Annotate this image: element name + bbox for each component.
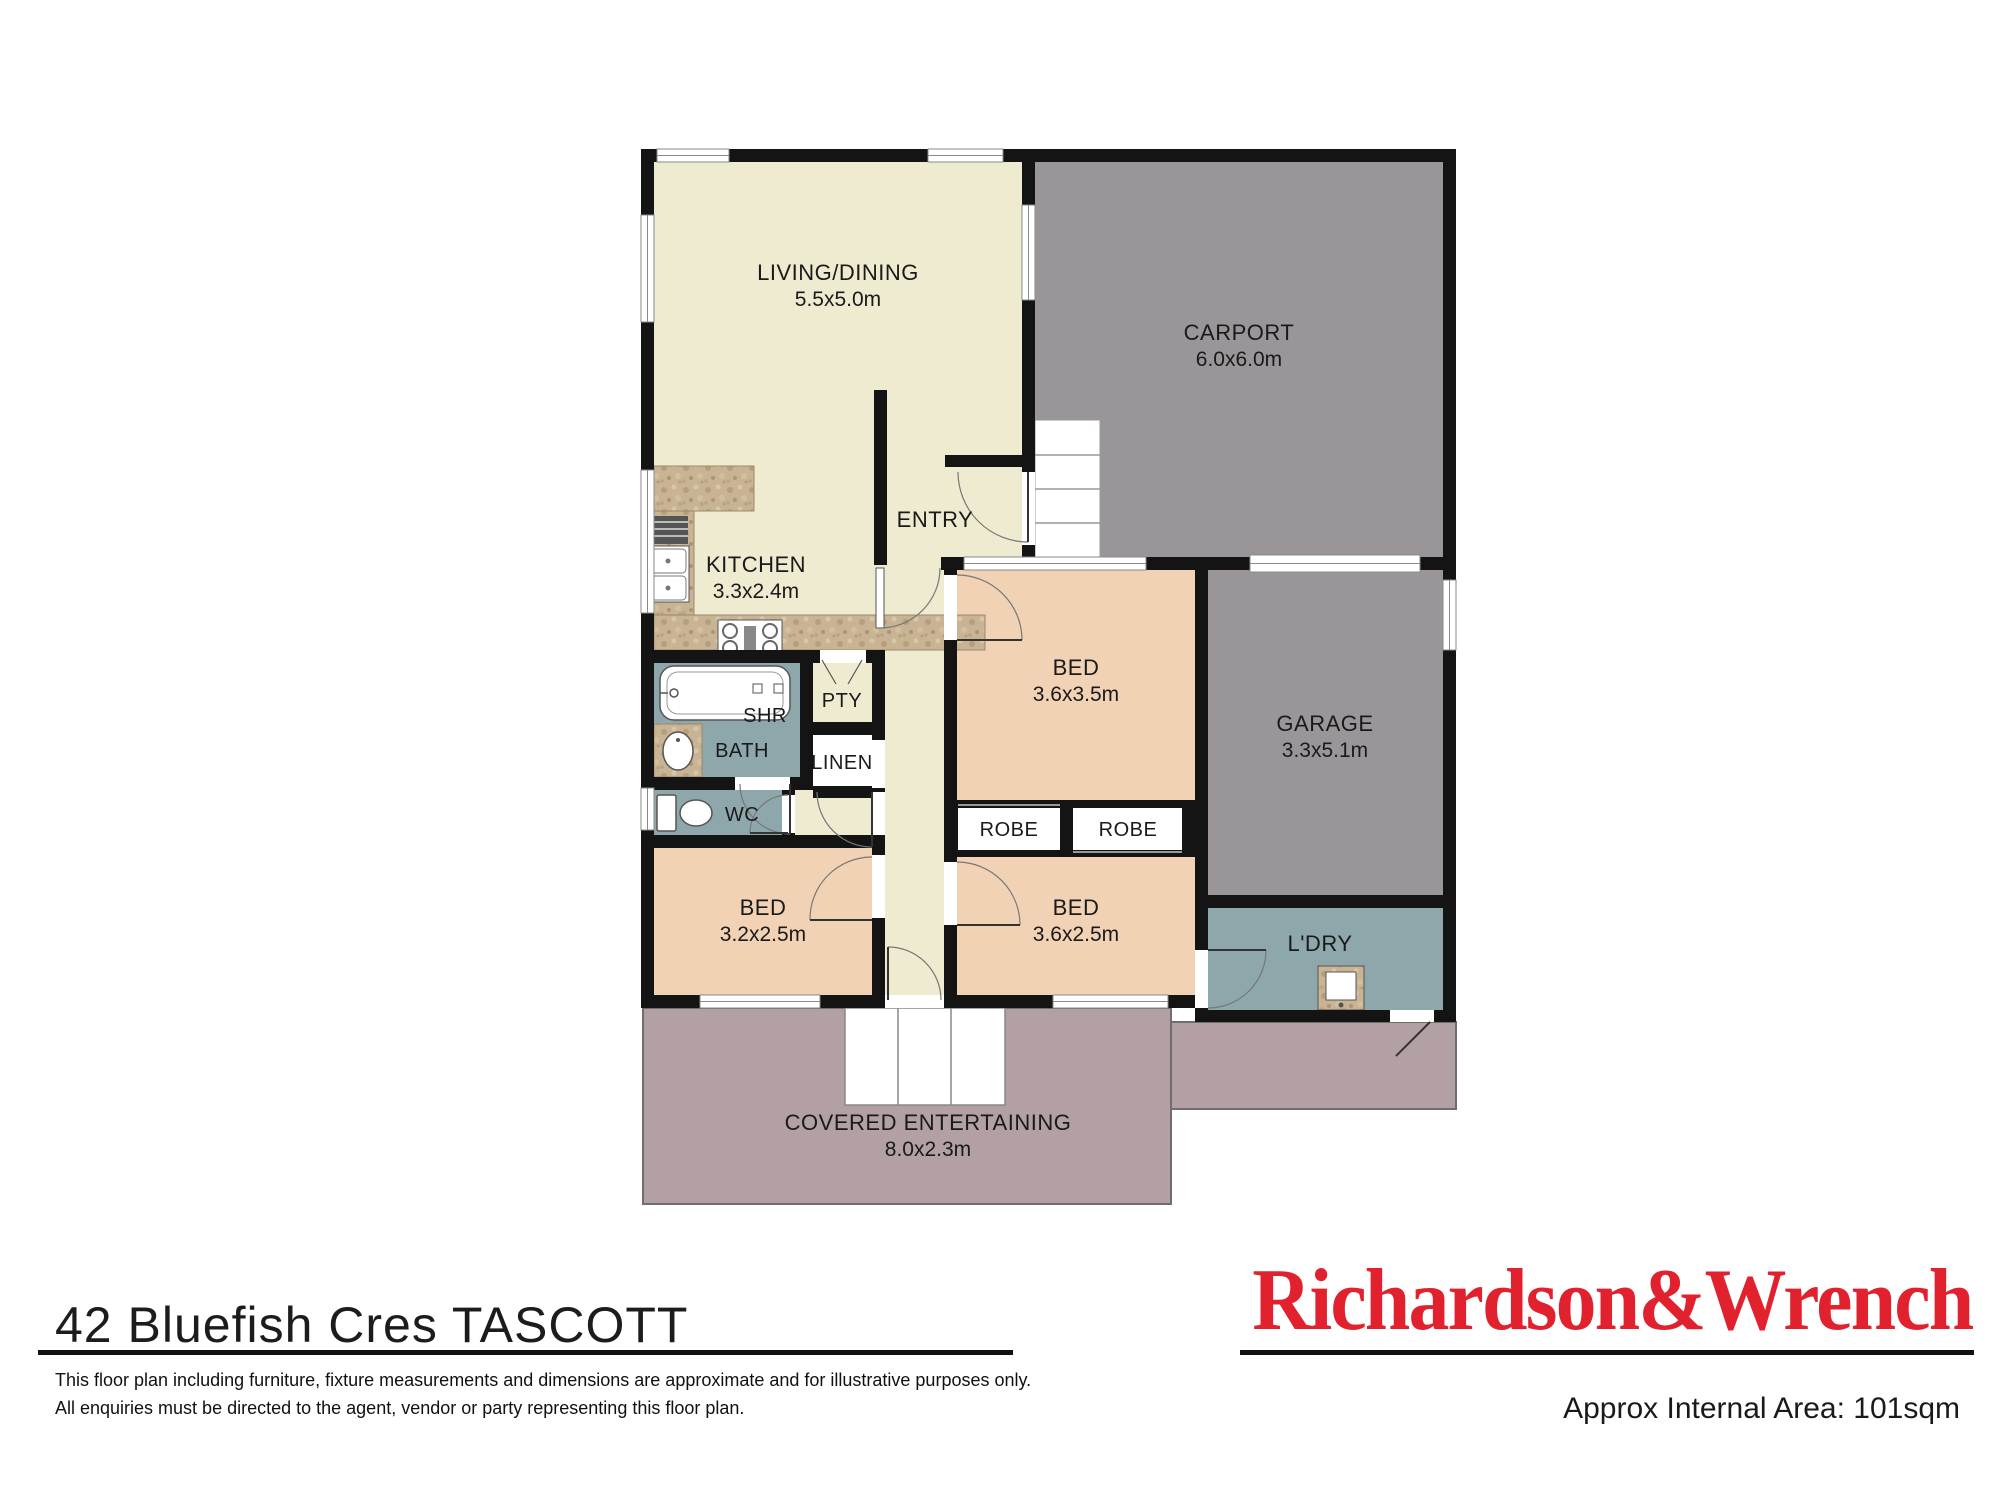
- property-address: 42 Bluefish Cres TASCOTT: [55, 1296, 688, 1354]
- garage-dims: 3.3x5.1m: [1282, 739, 1368, 762]
- dish-drainer: [649, 516, 688, 544]
- bath-label: BATH: [715, 740, 769, 762]
- shower-label: SHR: [743, 705, 787, 727]
- bed3-label: BED: [1053, 895, 1100, 920]
- robe1-label: ROBE: [980, 819, 1039, 841]
- washing-machine: [1318, 966, 1364, 1010]
- linen-label: LINEN: [811, 752, 872, 774]
- covered-entertaining-area: [643, 1008, 1456, 1204]
- bed2-label: BED: [740, 895, 787, 920]
- bed2-floor: [654, 848, 872, 995]
- carport-label: CARPORT: [1184, 320, 1295, 345]
- bed1-dims: 3.6x3.5m: [1033, 683, 1119, 706]
- carport-dims: 6.0x6.0m: [1196, 348, 1282, 371]
- entry-label: ENTRY: [897, 507, 974, 532]
- living-dims: 5.5x5.0m: [795, 288, 881, 311]
- kitchen-dims: 3.3x2.4m: [713, 580, 799, 603]
- laundry-label: L'DRY: [1288, 931, 1353, 956]
- wc-label: WC: [725, 804, 759, 826]
- bed3-dims: 3.6x2.5m: [1033, 923, 1119, 946]
- bed2-dims: 3.2x2.5m: [720, 923, 806, 946]
- disclaimer-line-1: This floor plan including furniture, fix…: [55, 1370, 1031, 1391]
- outdoor-steps: [845, 1008, 1005, 1105]
- agency-logo: Richardson&Wrench: [1252, 1250, 1972, 1351]
- bed1-label: BED: [1053, 655, 1100, 680]
- covered-dims: 8.0x2.3m: [885, 1138, 971, 1161]
- robe2-label: ROBE: [1099, 819, 1158, 841]
- disclaimer-line-2: All enquiries must be directed to the ag…: [55, 1398, 744, 1419]
- footer-divider-left: [38, 1350, 1013, 1355]
- covered-label: COVERED ENTERTAINING: [785, 1110, 1072, 1135]
- living-label: LIVING/DINING: [757, 260, 919, 285]
- floorplan-page: LIVING/DINING 5.5x5.0m CARPORT 6.0x6.0m …: [0, 0, 2000, 1500]
- pantry-label: PTY: [822, 690, 862, 712]
- garage-label: GARAGE: [1276, 711, 1373, 736]
- vanity-basin: [654, 724, 702, 777]
- internal-area-note: Approx Internal Area: 101sqm: [1563, 1392, 1960, 1426]
- kitchen-label: KITCHEN: [706, 552, 806, 577]
- entry-porch-steps: [1035, 420, 1100, 557]
